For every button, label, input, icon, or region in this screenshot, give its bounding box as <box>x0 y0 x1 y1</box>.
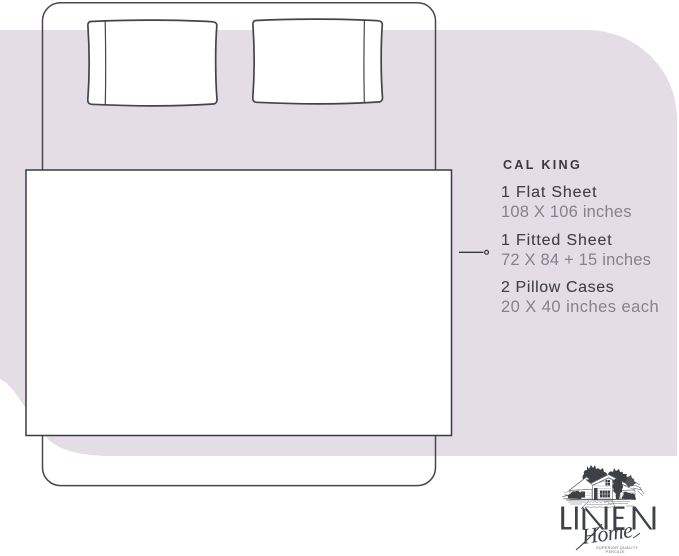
svg-text:Home: Home <box>579 517 634 549</box>
